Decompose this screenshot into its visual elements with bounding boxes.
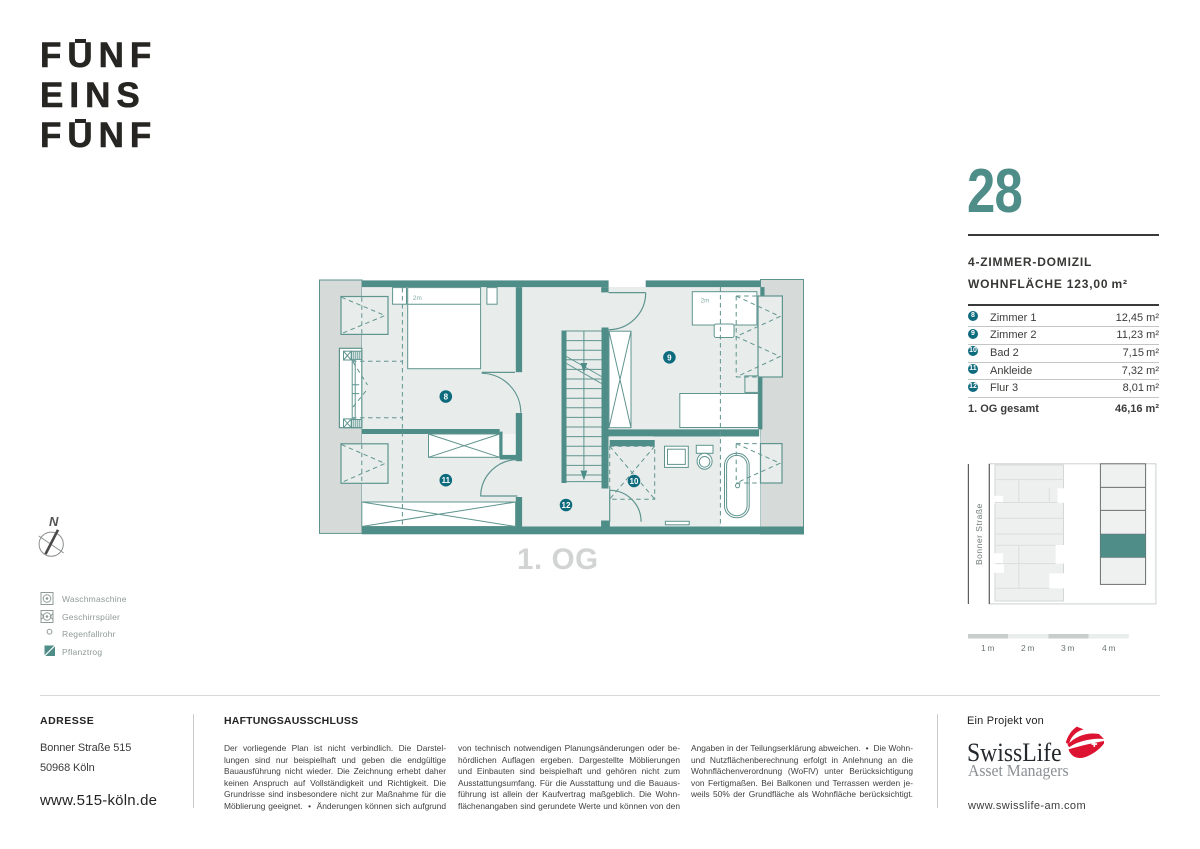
- svg-text:2m: 2m: [701, 298, 710, 305]
- svg-text:10: 10: [630, 477, 639, 486]
- svg-text:2m: 2m: [413, 295, 422, 302]
- svg-text:8: 8: [444, 393, 449, 402]
- svg-text:9: 9: [667, 353, 672, 362]
- svg-text:12: 12: [562, 501, 571, 510]
- svg-text:11: 11: [442, 476, 451, 485]
